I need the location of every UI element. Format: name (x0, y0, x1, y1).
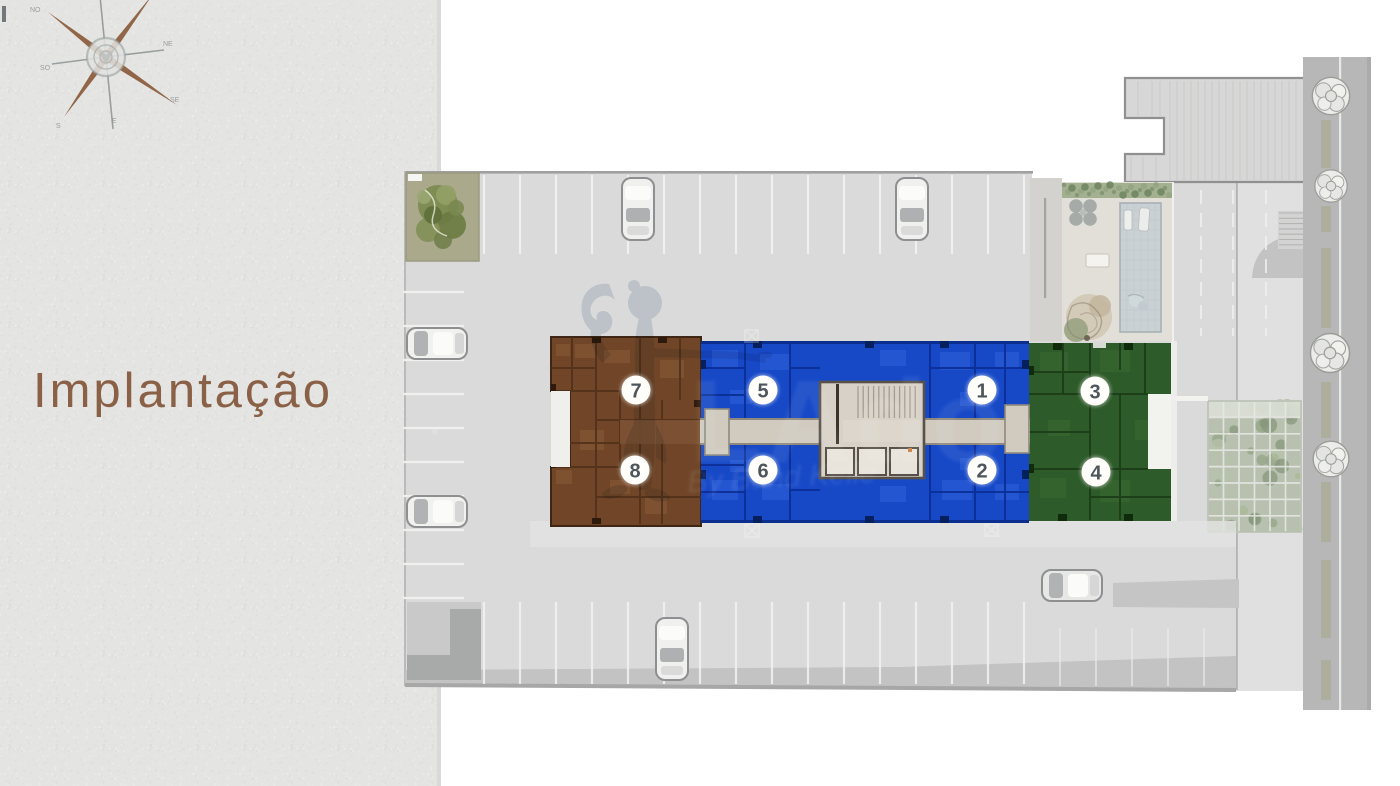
svg-text:2: 2 (976, 461, 987, 483)
svg-text:6: 6 (757, 461, 768, 483)
svg-text:SE: SE (170, 97, 180, 104)
svg-text:NE: NE (163, 41, 173, 48)
svg-text:1: 1 (976, 381, 987, 403)
svg-text:S: S (56, 123, 61, 130)
svg-text:4: 4 (1090, 463, 1102, 485)
svg-text:8: 8 (629, 461, 640, 483)
svg-text:·: · (429, 414, 441, 447)
svg-text:7: 7 (630, 381, 641, 403)
svg-text:5: 5 (757, 381, 768, 403)
svg-text:NO: NO (30, 7, 41, 14)
svg-text:E: E (112, 118, 117, 125)
svg-text:3: 3 (1089, 382, 1100, 404)
svg-text:Implantação: Implantação (33, 364, 333, 418)
svg-text:SO: SO (40, 65, 51, 72)
